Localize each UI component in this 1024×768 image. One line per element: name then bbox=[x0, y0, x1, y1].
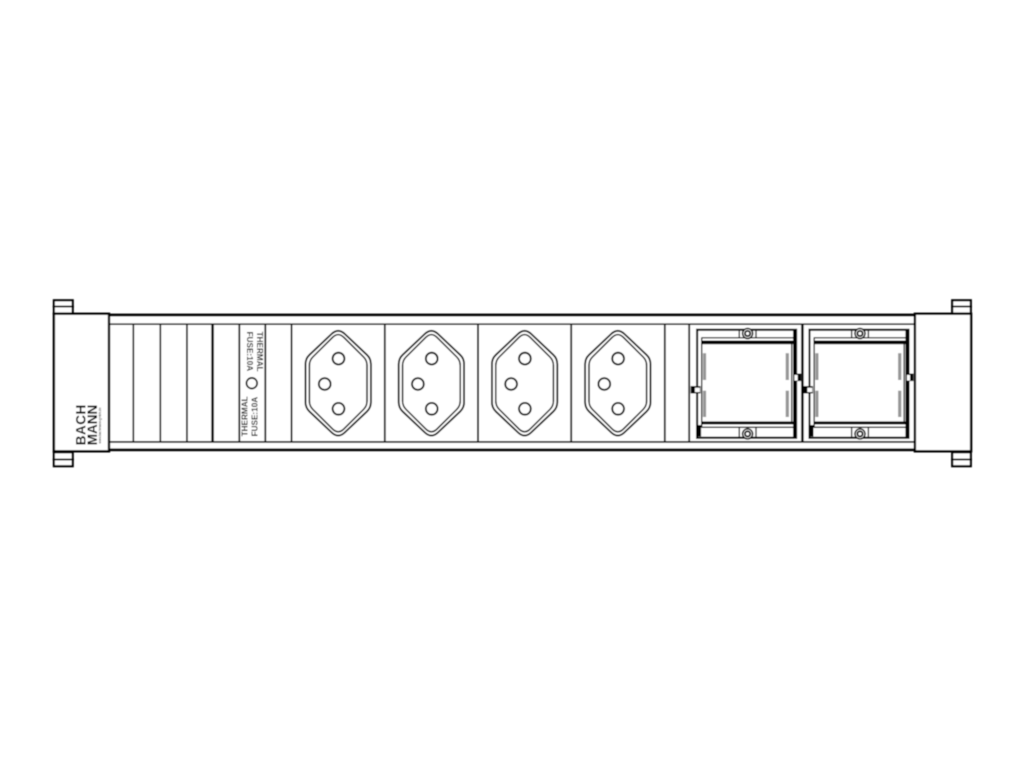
svg-text:FUSE:10A: FUSE:10A bbox=[251, 397, 260, 437]
svg-text:THERMAL: THERMAL bbox=[241, 396, 250, 436]
svg-text:www.bachmann-gmbh.de: www.bachmann-gmbh.de bbox=[98, 407, 102, 443]
svg-text:FUSE:10A: FUSE:10A bbox=[245, 332, 254, 372]
svg-text:THERMAL: THERMAL bbox=[255, 332, 264, 372]
